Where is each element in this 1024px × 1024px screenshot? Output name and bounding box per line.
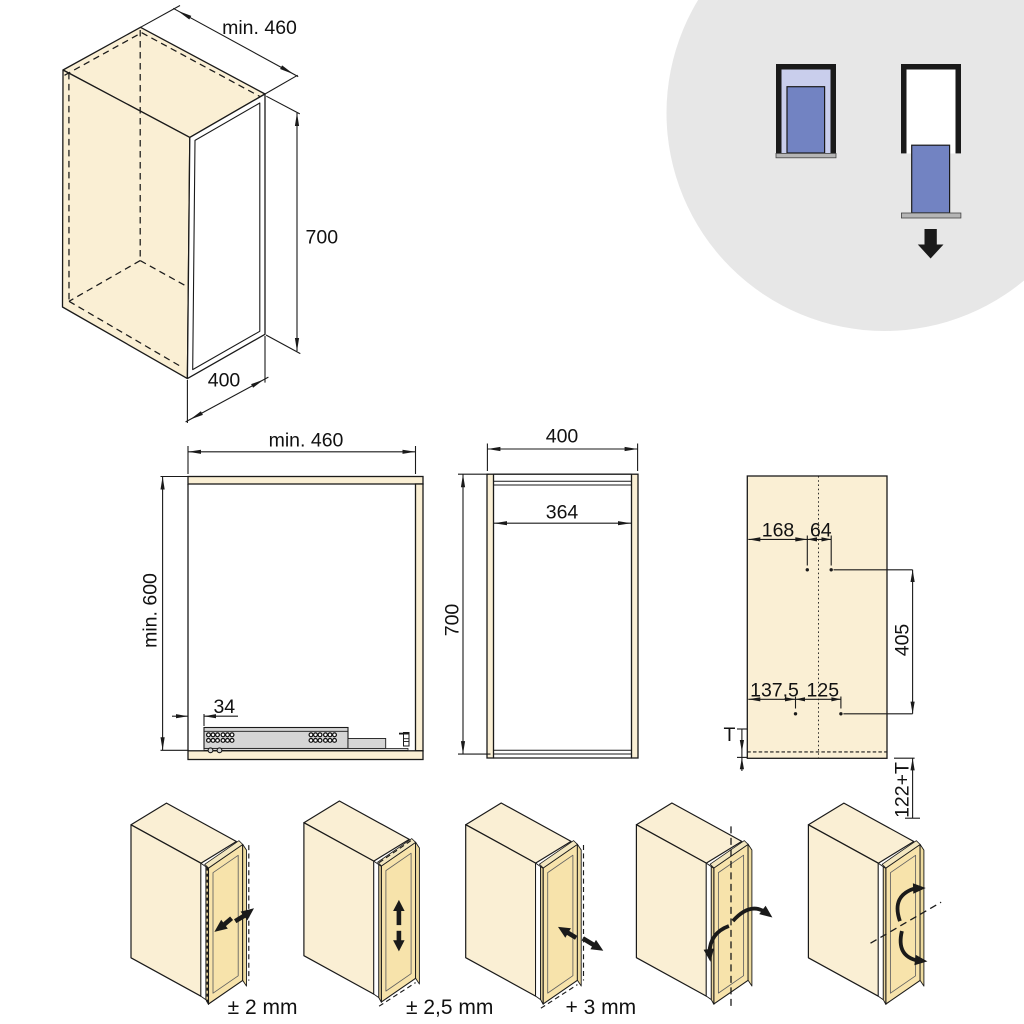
svg-text:168: 168 (762, 520, 795, 542)
svg-text:min. 460: min. 460 (269, 429, 344, 451)
svg-text:137,5: 137,5 (750, 680, 799, 702)
svg-text:± 2,5 mm: ± 2,5 mm (406, 996, 493, 1019)
svg-text:700: 700 (306, 227, 339, 249)
svg-text:min. 460: min. 460 (222, 17, 297, 39)
svg-text:34: 34 (213, 696, 235, 718)
svg-text:122+T: 122+T (892, 762, 914, 818)
svg-text:min. 600: min. 600 (140, 573, 162, 648)
svg-text:400: 400 (546, 426, 579, 448)
svg-text:+ 3 mm: + 3 mm (565, 996, 636, 1019)
svg-text:T: T (724, 724, 736, 746)
svg-text:± 2 mm: ± 2 mm (228, 996, 298, 1019)
svg-text:405: 405 (892, 624, 914, 657)
svg-text:700: 700 (442, 604, 464, 637)
svg-text:364: 364 (546, 502, 579, 524)
svg-text:400: 400 (208, 370, 241, 392)
svg-text:64: 64 (810, 520, 832, 542)
svg-text:125: 125 (807, 680, 840, 702)
